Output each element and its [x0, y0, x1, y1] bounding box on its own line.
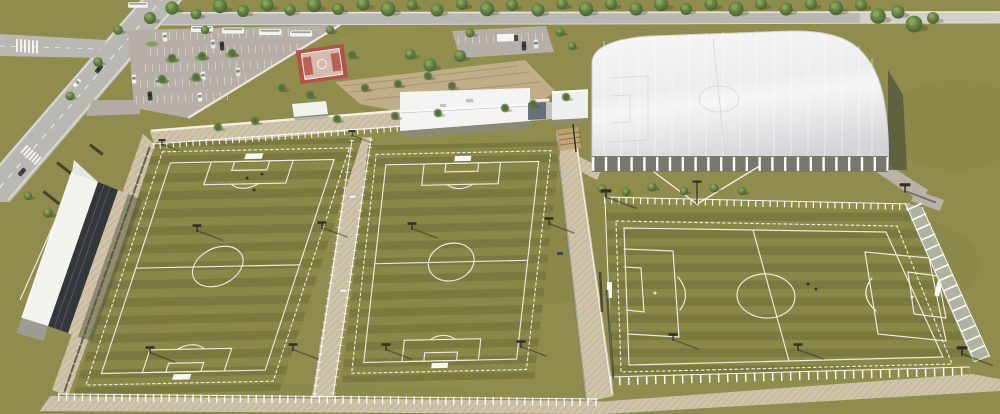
- car-white: [534, 39, 539, 48]
- bus-on-road: [128, 2, 148, 7]
- pitch-center: [342, 141, 561, 382]
- aerial-site-plan: [0, 0, 1000, 414]
- service-building: [552, 90, 589, 125]
- bench-dark: [557, 252, 563, 255]
- rooftop-unit: [440, 104, 446, 107]
- parking-entrance-drive: [86, 100, 140, 116]
- bench: [340, 289, 347, 293]
- bench: [349, 195, 356, 199]
- aerial-render-viewport: [0, 0, 1000, 414]
- basketball-court: [296, 44, 348, 84]
- car-dark: [522, 41, 527, 50]
- arena-base-ribs: [592, 156, 888, 172]
- rooftop-unit: [466, 99, 473, 102]
